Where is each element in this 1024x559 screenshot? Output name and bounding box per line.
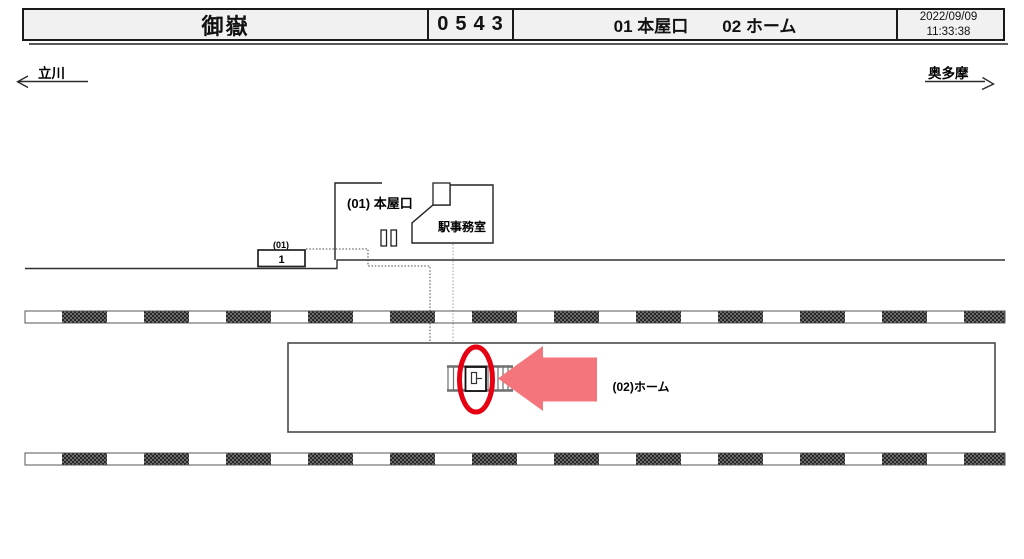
platform-device-box[interactable] — [466, 367, 487, 391]
platform-label: (02)ホーム — [613, 380, 670, 394]
building-outline — [335, 183, 382, 260]
device-number: 1 — [278, 254, 284, 266]
ticket-machine-box — [433, 183, 450, 205]
track-lower — [25, 453, 1005, 465]
gate-right — [391, 230, 397, 246]
ground-line — [25, 260, 1005, 269]
office-label: 駅事務室 — [437, 219, 486, 234]
office-room — [412, 185, 493, 243]
direction-right-label: 奥多摩 — [928, 65, 969, 81]
station-map: 立川 奥多摩 (01) 本屋口 駅事務室 (01) 1 (02)ホーム — [0, 0, 1024, 559]
entrance-label: (01) 本屋口 — [347, 196, 413, 211]
gate-left — [381, 230, 387, 246]
device-group-label: (01) — [273, 240, 289, 250]
track-upper — [25, 311, 1005, 323]
direction-left-label: 立川 — [38, 65, 65, 81]
